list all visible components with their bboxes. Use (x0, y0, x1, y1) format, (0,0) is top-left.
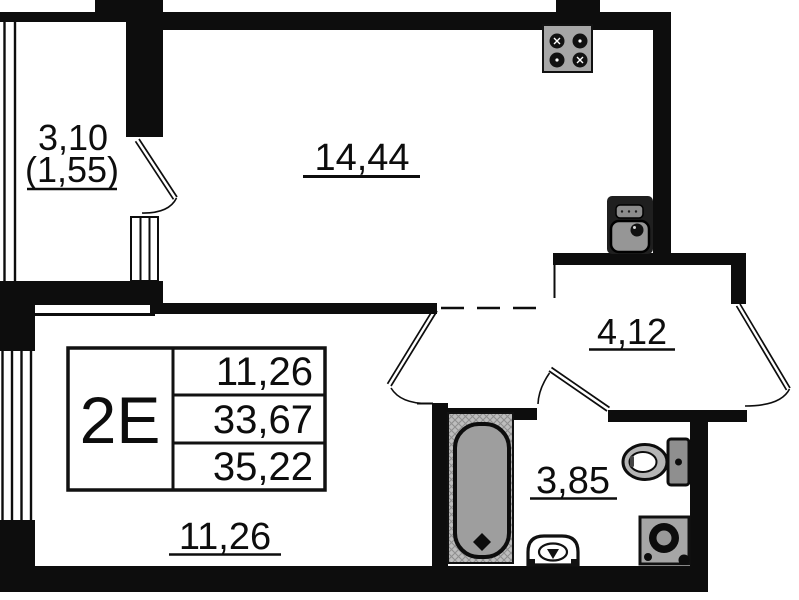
washbasin-icon (528, 536, 578, 566)
wall-bathroom-right (690, 412, 708, 568)
wall-entrance-right (731, 253, 746, 304)
hall-area-label: 4,12 (597, 311, 667, 352)
washing-machine-icon (640, 517, 690, 566)
wall-hall-top (553, 253, 746, 265)
info-table-value-1: 11,26 (216, 350, 313, 394)
wall-bedroom-top-thick (150, 303, 437, 314)
kitchen-sink-icon (607, 196, 653, 254)
info-table-value-2: 33,67 (213, 398, 313, 442)
wall-kitchen-right (653, 12, 671, 253)
wall-left-upper (0, 281, 35, 351)
bathroom-area-label: 3,85 (536, 460, 610, 502)
wall-bedroom-top-thin (35, 313, 155, 316)
living-area-label: 14,44 (314, 137, 409, 179)
wall-vent-stub (556, 0, 600, 14)
balcony-partition-window (131, 217, 158, 281)
balcony-area-coeff-label: (1,55) (25, 149, 119, 190)
wall-hall-bottom (608, 410, 747, 422)
stove-icon (543, 25, 592, 72)
wall-party-stub (95, 0, 163, 14)
bathtub-icon (448, 413, 513, 563)
wall-bathroom-left (432, 403, 448, 568)
info-table: 2E 11,26 33,67 35,22 (68, 348, 325, 490)
wall-bottom (0, 566, 708, 592)
unit-type-label: 2E (80, 383, 161, 457)
floor-plan: 3,10 (1,55) 14,44 4,12 3,85 11,26 2E 11,… (0, 0, 799, 600)
wall-balcony-partition (126, 12, 163, 137)
bedroom-area-label: 11,26 (179, 516, 271, 558)
info-table-value-3: 35,22 (213, 445, 313, 489)
toilet-icon (623, 439, 689, 485)
